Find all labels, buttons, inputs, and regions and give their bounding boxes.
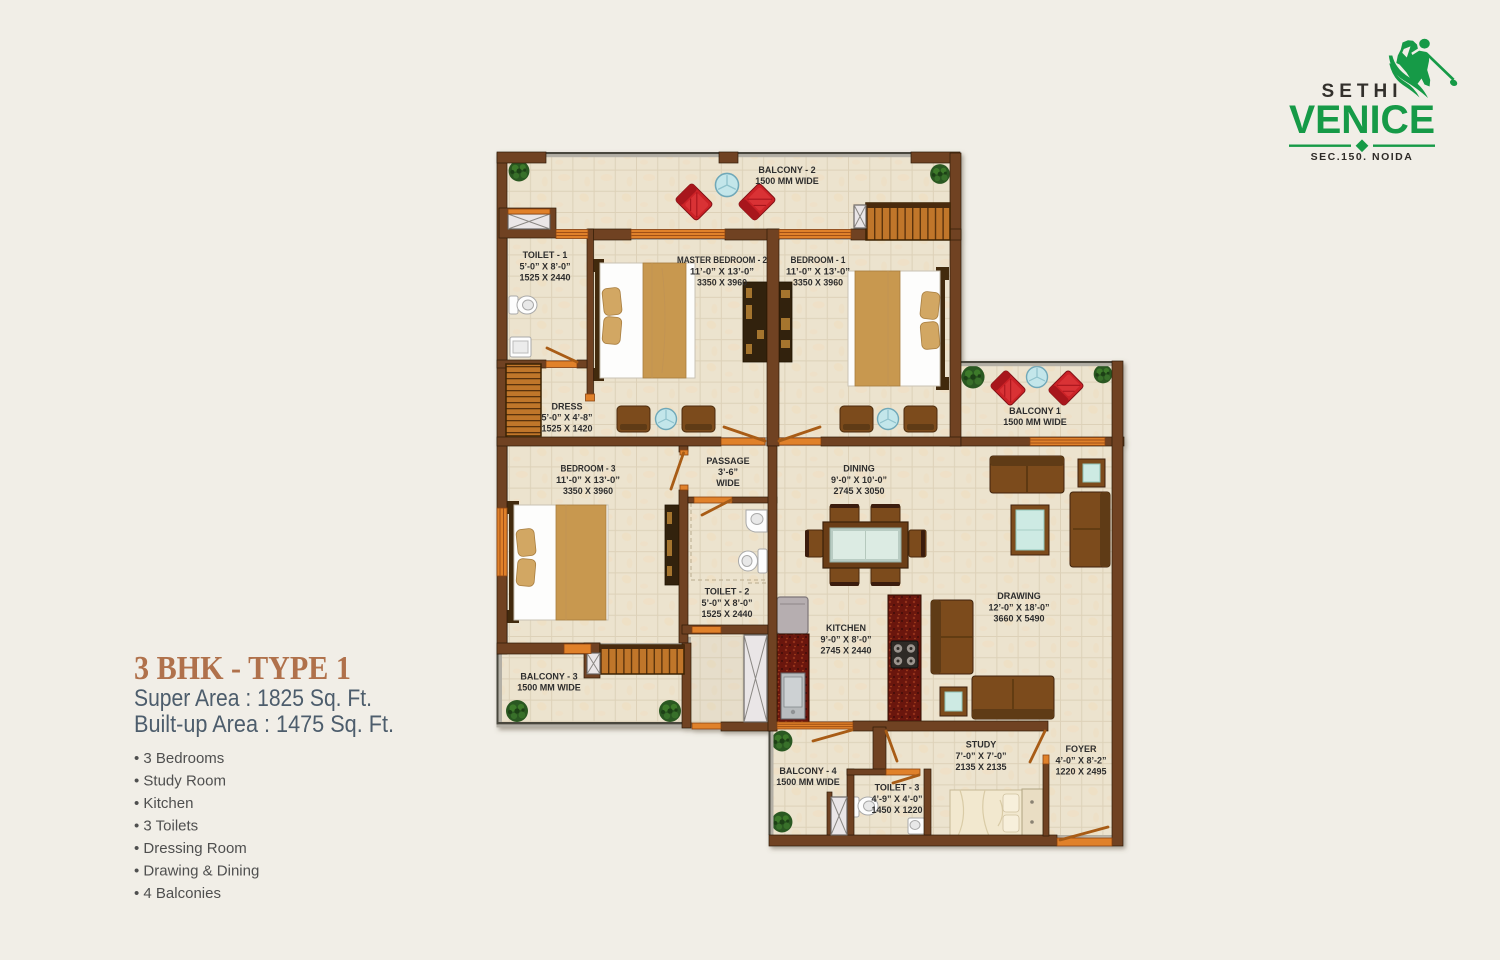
svg-text:BALCONY - 4: BALCONY - 4	[779, 766, 836, 776]
svg-text:FOYER: FOYER	[1065, 744, 1097, 754]
svg-text:4’-0” X 8’-2”: 4’-0” X 8’-2”	[1055, 756, 1106, 766]
svg-text:1525 X 2440: 1525 X 2440	[519, 273, 570, 283]
svg-text:2745 X 3050: 2745 X 3050	[833, 486, 884, 496]
svg-text:SEC.150. NOIDA: SEC.150. NOIDA	[1311, 151, 1414, 163]
svg-text:2745 X 2440: 2745 X 2440	[820, 646, 871, 656]
svg-text:1500 MM WIDE: 1500 MM WIDE	[776, 777, 840, 787]
svg-text:1500 MM WIDE: 1500 MM WIDE	[755, 176, 819, 186]
svg-text:3 BHK - TYPE 1: 3 BHK - TYPE 1	[134, 650, 351, 687]
svg-text:11’-0” X 13’-0”: 11’-0” X 13’-0”	[690, 267, 754, 277]
svg-text:Built-up Area : 1475 Sq. Ft.: Built-up Area : 1475 Sq. Ft.	[134, 711, 394, 738]
svg-text:1500 MM WIDE: 1500 MM WIDE	[1003, 417, 1067, 427]
svg-text:3350 X 3960: 3350 X 3960	[793, 278, 843, 288]
svg-text:MASTER BEDROOM - 2: MASTER BEDROOM - 2	[677, 255, 767, 265]
svg-text:STUDY: STUDY	[966, 740, 997, 750]
svg-text:TOILET - 1: TOILET - 1	[523, 250, 568, 260]
svg-text:BALCONY - 3: BALCONY - 3	[520, 672, 577, 682]
svg-text:7’-0” X 7’-0”: 7’-0” X 7’-0”	[955, 751, 1006, 761]
svg-text:• 4 Balconies: • 4 Balconies	[134, 885, 221, 902]
svg-text:DRESS: DRESS	[551, 402, 582, 412]
svg-text:• Dressing Room: • Dressing Room	[134, 840, 247, 857]
svg-text:1525 X 2440: 1525 X 2440	[701, 609, 752, 619]
svg-text:BALCONY 1: BALCONY 1	[1009, 406, 1061, 416]
svg-text:5’-0” X 4’-8”: 5’-0” X 4’-8”	[541, 413, 592, 423]
svg-text:9’-0” X 8’-0”: 9’-0” X 8’-0”	[820, 635, 871, 645]
svg-text:1525 X 1420: 1525 X 1420	[541, 424, 592, 434]
svg-text:VENICE: VENICE	[1289, 98, 1435, 142]
svg-text:WIDE: WIDE	[716, 478, 740, 488]
svg-text:• Study Room: • Study Room	[134, 773, 226, 790]
svg-text:• 3 Toilets: • 3 Toilets	[134, 818, 198, 835]
svg-text:1450 X 1220: 1450 X 1220	[871, 805, 922, 815]
svg-text:TOILET - 3: TOILET - 3	[875, 783, 920, 793]
svg-text:BALCONY - 2: BALCONY - 2	[758, 165, 815, 175]
svg-text:11’-0” X 13’-0”: 11’-0” X 13’-0”	[786, 267, 850, 277]
svg-text:BEDROOM - 1: BEDROOM - 1	[791, 255, 846, 265]
svg-text:5’-0” X 8’-0”: 5’-0” X 8’-0”	[701, 598, 752, 608]
svg-text:• Kitchen: • Kitchen	[134, 795, 193, 812]
svg-text:3’-6”: 3’-6”	[718, 467, 738, 477]
svg-text:BEDROOM - 3: BEDROOM - 3	[561, 464, 616, 474]
svg-text:2135 X 2135: 2135 X 2135	[955, 762, 1006, 772]
svg-text:1500 MM WIDE: 1500 MM WIDE	[517, 683, 581, 693]
svg-text:TOILET - 2: TOILET - 2	[705, 587, 750, 597]
svg-text:• Drawing & Dining: • Drawing & Dining	[134, 863, 259, 880]
svg-text:11’-0” X 13’-0”: 11’-0” X 13’-0”	[556, 475, 620, 485]
svg-text:1220 X 2495: 1220 X 2495	[1055, 767, 1106, 777]
svg-text:DRAWING: DRAWING	[997, 591, 1041, 601]
svg-text:3350 X 3960: 3350 X 3960	[697, 278, 747, 288]
svg-text:4’-9” X 4’-0”: 4’-9” X 4’-0”	[871, 794, 922, 804]
svg-text:9’-0” X 10’-0”: 9’-0” X 10’-0”	[831, 475, 887, 485]
svg-text:3350 X 3960: 3350 X 3960	[563, 486, 613, 496]
svg-text:12’-0” X 18’-0”: 12’-0” X 18’-0”	[988, 603, 1049, 613]
svg-text:5’-0” X 8’-0”: 5’-0” X 8’-0”	[519, 262, 570, 272]
svg-text:PASSAGE: PASSAGE	[706, 456, 749, 466]
svg-text:KITCHEN: KITCHEN	[826, 623, 866, 633]
svg-text:• 3 Bedrooms: • 3 Bedrooms	[134, 750, 224, 767]
svg-text:Super Area : 1825 Sq. Ft.: Super Area : 1825 Sq. Ft.	[134, 685, 372, 712]
svg-text:DINING: DINING	[843, 464, 875, 474]
svg-text:3660 X 5490: 3660 X 5490	[993, 614, 1044, 624]
